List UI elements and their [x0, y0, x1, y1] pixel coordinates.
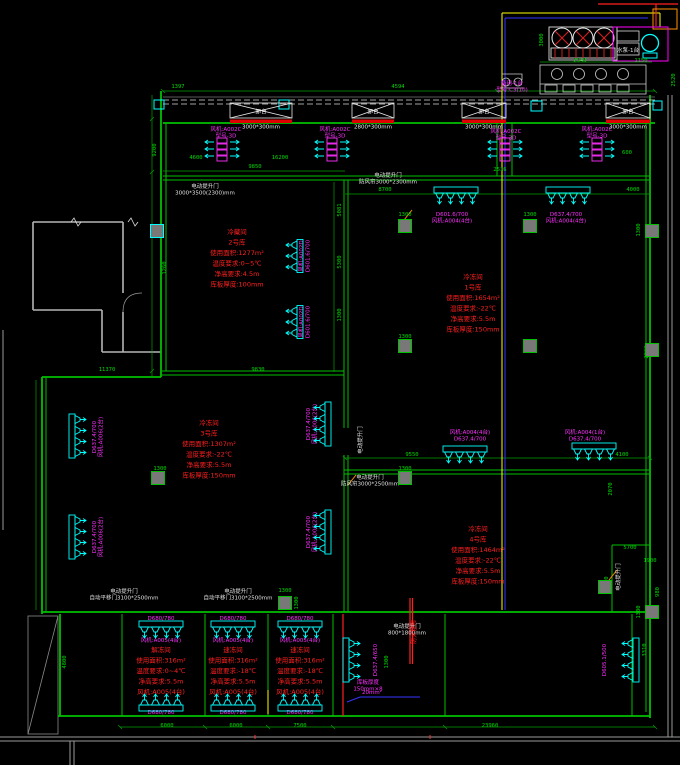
fancoil-unit: [315, 138, 349, 161]
adjacent-building: [33, 218, 161, 352]
door-note: 电动提升门防风帘3000*2300mm: [359, 171, 417, 186]
room-spec-label: 冷藏间2号库使用面积:1277m²温度要求:0~5℃净高要求:4.5m库板厚度:…: [210, 227, 264, 289]
dimension-text: 6000: [160, 723, 173, 729]
structural-column: [646, 606, 659, 619]
dimension-text: 1900: [643, 558, 656, 564]
structural-column: [151, 225, 164, 238]
structural-column: [646, 344, 659, 357]
door-note: 电动提升门: [356, 426, 364, 454]
dimension-text: 1300: [294, 596, 300, 609]
dimension-text: 6000: [229, 723, 242, 729]
fan-unit-label: 风机:A002C型号-3D: [582, 125, 613, 140]
dimension-text: 5700: [623, 545, 636, 551]
fan-unit-label: D637.4/700风机:A004(4台): [546, 212, 586, 225]
room-spec-label: 冷冻间3号库使用面积:1307m²温度要求:-22℃净高要求:5.5m库板厚度:…: [182, 418, 236, 480]
dimension-text: 9550: [405, 452, 418, 458]
fancoil-unit: [205, 138, 239, 161]
fire-shutter-label: 防火卷帘: [410, 620, 418, 644]
fan-unit-label: D637.4/700风机:A006(2台): [306, 404, 319, 444]
fan-unit-label: 风机:A002DD601.6/700: [297, 239, 312, 272]
dimension-text: 23960: [482, 723, 499, 729]
dock-bay-label: 卸台: [622, 108, 634, 116]
evaporator-unit: [139, 621, 183, 638]
dimension-text: 1300: [636, 605, 642, 618]
door-note: 电动提升门3000*3500(2300)mm: [175, 182, 235, 197]
dimension-text: 4594: [391, 84, 405, 90]
dimension-text: 16200: [272, 155, 289, 161]
door-note: 电动提升门防风帘3000*2500mm: [341, 473, 399, 488]
evaporator-unit: [211, 621, 255, 638]
room-spec-label: 速冻间使用面积:316m²温度要求:-18℃净高要求:5.5m风机:A005(4…: [275, 645, 325, 696]
structural-column: [524, 340, 537, 353]
door-note: 电动提升门800*1800mm: [388, 622, 426, 637]
dimension-text: 1300: [636, 223, 642, 236]
cooling-towers: [552, 28, 614, 58]
evaporator-unit: [139, 694, 183, 711]
fan-unit-label: 风机:A002C型号-3D: [211, 125, 242, 140]
dimension-text: 7500: [293, 723, 306, 729]
fan-unit-label: 风机:A005(4台): [213, 636, 253, 644]
dimension-text: 4100: [615, 452, 628, 458]
dock-bay-label: 卸台: [367, 108, 379, 116]
dimension-text: 2520: [671, 73, 677, 86]
evaporator-unit: [443, 446, 487, 463]
dimension-text: 1300: [337, 308, 343, 321]
fan-unit-label: 20mm²: [362, 689, 382, 696]
fancoil-unit: [580, 138, 614, 161]
structural-column: [399, 220, 412, 233]
evaporator-unit: [572, 443, 616, 460]
dock-bay-size: 3000*300mm: [609, 125, 647, 131]
fan-unit-label: D637.4/700风机:A006(2台): [306, 512, 319, 552]
dimension-text: 2070: [608, 482, 614, 495]
dock-bumper-bar: [230, 120, 292, 124]
dimension-text: 4000: [626, 187, 639, 193]
dock-bay-size: 3000*300mm: [465, 125, 503, 131]
dimension-text: 1260: [162, 261, 168, 274]
fan-unit-label: 风机:A002DD601.6/700: [297, 305, 312, 338]
door-note: 电动提升门自动平移门3100*2500mm: [204, 587, 273, 602]
fan-unit-label: D637.4/700风机:A006(2台): [92, 417, 105, 457]
evaporator-unit: [278, 694, 322, 711]
room-spec-label: 冷冻间1号库使用面积:1654m²温度要求:-22℃净高要求:5.5m库板厚度:…: [446, 272, 500, 334]
dimension-text: 3310: [642, 643, 648, 656]
room-spec-label: 解冻间使用面积:316m²温度要求:0~4℃净高要求:5.5m风机:A005(4…: [136, 645, 186, 696]
evaporator-unit: [278, 621, 322, 638]
dimension-text: 5081: [337, 203, 343, 216]
evaporator-unit: [69, 414, 86, 458]
evaporator-unit: [434, 187, 478, 204]
cad-drawing-viewport[interactable]: 1397459446001620098502516870040002543115…: [0, 0, 680, 765]
water-tank-unit: [613, 27, 668, 61]
dimension-text: 1300: [398, 212, 411, 218]
dimension-text: 1300: [384, 655, 390, 668]
dimension-text: 4600: [189, 155, 202, 161]
room-spec-label: 速冻间使用面积:316m²温度要求:-18℃净高要求:5.5m风机:A005(4…: [208, 645, 258, 696]
fan-unit-label: D637.4/700风机:A006(2台): [92, 517, 105, 557]
dock-bay-size: 3000*300mm: [242, 125, 280, 131]
evaporator-unit: [546, 187, 590, 204]
walls: [42, 91, 655, 718]
fan-unit-label: D601.6/700风机:A004(4台): [432, 212, 472, 225]
dimension-text: 2543: [573, 58, 586, 64]
fan-unit-label: 风机:A004(4台)D637.4/700: [450, 428, 490, 443]
room-spec-label: 冷冻间4号库使用面积:1464m²温度要求:-22℃净高要求:5.5m库板厚度:…: [451, 524, 505, 586]
dimension-lines: [36, 62, 657, 729]
door-note: 电动提升门自动平移门3100*2500mm: [90, 587, 159, 602]
fan-unit-label: 风机:A002C型号-3D: [320, 125, 351, 140]
dock-bumper-bar: [606, 120, 650, 124]
floor-plan-canvas[interactable]: 1397459446001620098502516870040002543115…: [0, 0, 680, 765]
dimension-text: 4800: [62, 655, 68, 668]
fan-unit-label: D605.1/500: [602, 643, 608, 676]
evaporator-unit: [622, 638, 639, 682]
dock-bumper-bar: [352, 120, 394, 124]
door-note: 水泵-1台: [617, 46, 639, 54]
fan-unit-label: 风机:A004(1台)D637.4/700: [565, 428, 605, 443]
evaporator-unit: [69, 515, 86, 559]
structural-column: [279, 597, 292, 610]
dock-bay-label: 卸台: [478, 108, 490, 116]
dimension-text: 1300: [523, 212, 536, 218]
structural-column: [152, 472, 165, 485]
dimension-text: 8700: [378, 187, 391, 193]
structural-column: [599, 581, 612, 594]
dock-bay-size: 2800*300mm: [354, 125, 392, 131]
evaporator-unit: [211, 694, 255, 711]
dimension-text: 1397: [171, 84, 184, 90]
dimension-text: 1300: [278, 588, 291, 594]
fan-unit-label: D637.4/650: [373, 643, 379, 676]
fan-unit-label: 风机:A005(4台): [141, 636, 181, 644]
structural-column: [524, 220, 537, 233]
dock-bay-label: 卸台: [255, 108, 267, 116]
structural-column: [646, 225, 659, 238]
dimension-text: 9830: [251, 367, 264, 373]
dimension-text: 5300: [337, 255, 343, 268]
pipes: [268, 4, 678, 716]
structural-column: [399, 472, 412, 485]
evaporator-unit: [343, 638, 360, 682]
fan-unit-label: 备用-1台型号:C3(10): [496, 79, 527, 94]
dimension-text: 980: [655, 587, 661, 597]
fan-unit-label: 风机:A005(4台): [280, 636, 320, 644]
dimension-text: 600: [622, 150, 632, 156]
dock-bumper-bar: [462, 120, 506, 124]
structural-column: [399, 340, 412, 353]
dimension-text: 9200: [152, 143, 158, 156]
dimension-text: 1150: [634, 58, 647, 64]
dimension-text: 11370: [99, 367, 116, 373]
dimension-text: 2516: [493, 167, 506, 173]
door-note: 电动提升门: [614, 563, 622, 591]
dimension-text: 3000: [539, 33, 545, 46]
dimension-text: 9850: [248, 164, 261, 170]
